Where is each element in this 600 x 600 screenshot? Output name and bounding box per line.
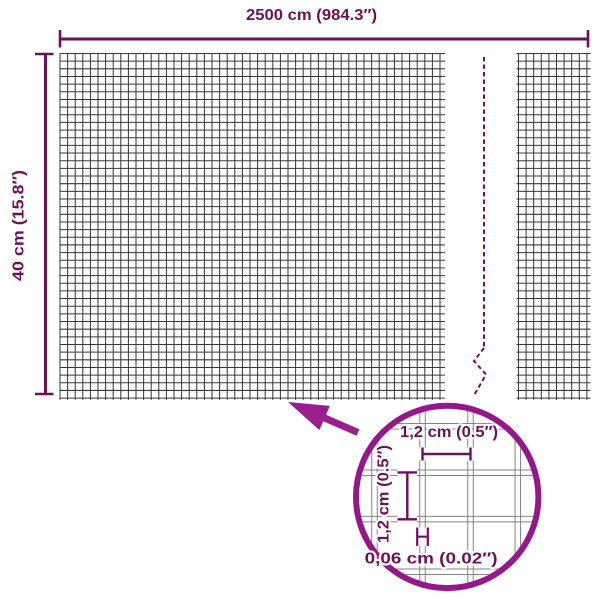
svg-text:40 cm (15.8″): 40 cm (15.8″) xyxy=(10,170,27,281)
svg-text:1,2 cm (0.5″): 1,2 cm (0.5″) xyxy=(400,424,498,441)
svg-text:2500 cm (984.3″): 2500 cm (984.3″) xyxy=(246,7,377,24)
svg-text:0,06 cm (0.02″): 0,06 cm (0.02″) xyxy=(365,551,498,568)
svg-text:1,2 cm (0.5″): 1,2 cm (0.5″) xyxy=(375,445,392,543)
